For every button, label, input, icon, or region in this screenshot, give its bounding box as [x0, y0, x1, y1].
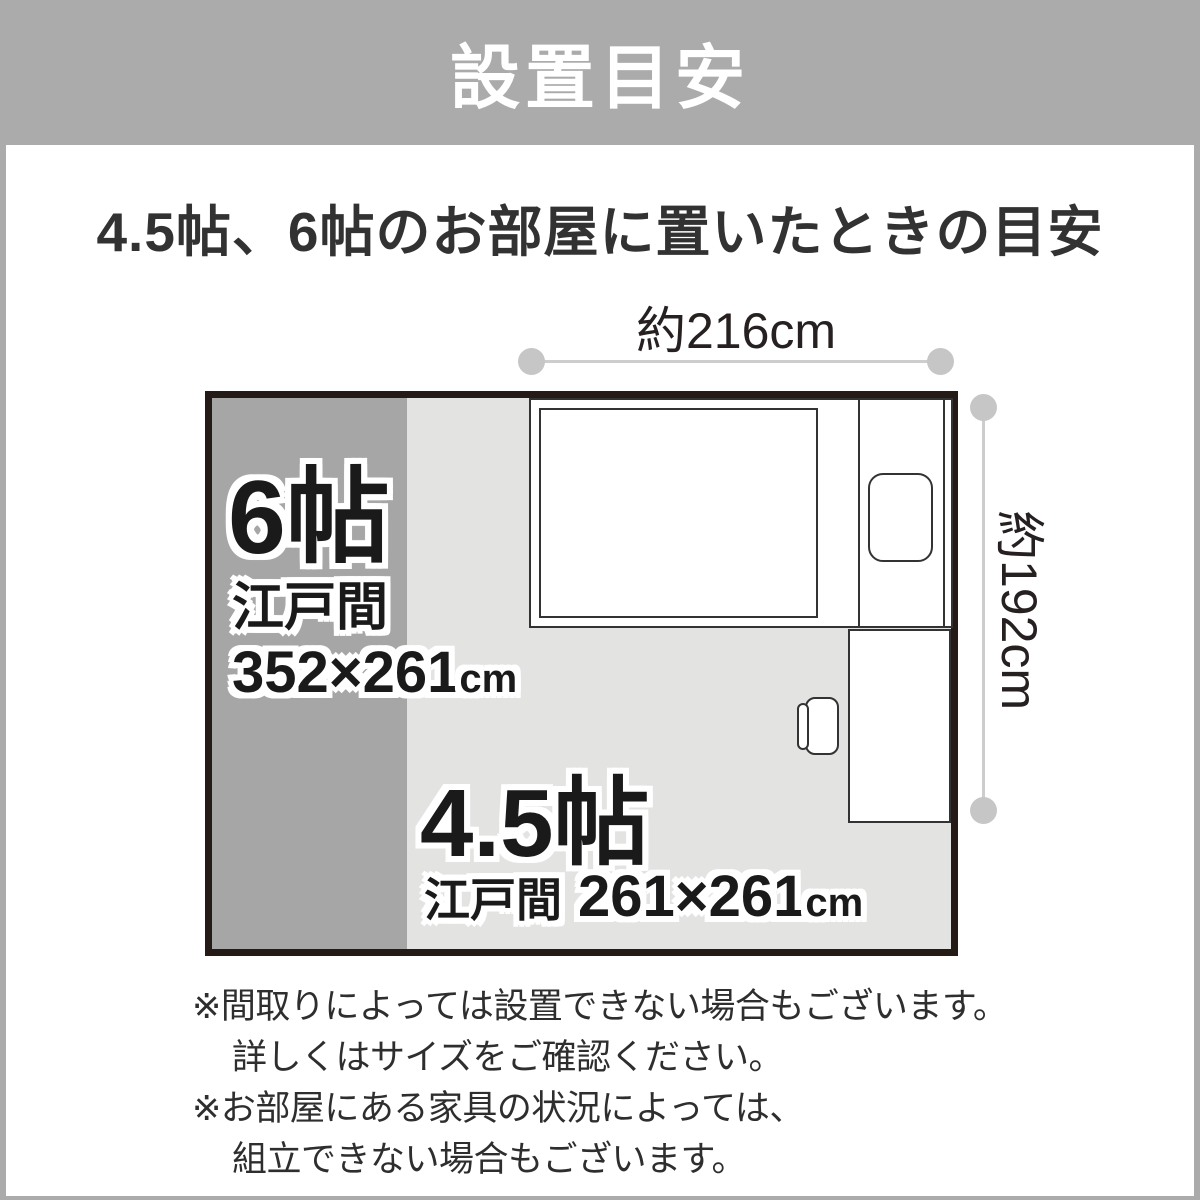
- desk-outline: [848, 629, 951, 823]
- chair-seat: [805, 697, 839, 755]
- content-card: 4.5帖、6帖のお部屋に置いたときの目安 約216cm 約192cm 6帖 江戸…: [6, 145, 1194, 1196]
- six-jo-dimensions-unit: cm: [459, 657, 517, 701]
- four-half-jo-dimensions-value: 261×261: [578, 864, 805, 929]
- chair-backrest: [797, 703, 809, 750]
- note-line: ※お部屋にある家具の状況によっては、: [192, 1083, 1007, 1134]
- bed-duvet: [539, 408, 818, 618]
- four-half-jo-details-label: 江戸間261×261cm: [424, 868, 863, 926]
- six-jo-dimensions-label: 352×261cm: [232, 644, 517, 702]
- dimension-endpoint-dot: [970, 797, 997, 824]
- four-half-jo-type-label: 江戸間: [424, 874, 562, 926]
- page-background: { "header": { "title": "設置目安" }, "conten…: [0, 0, 1200, 1200]
- room-outline: 6帖 江戸間 352×261cm 4.5帖 江戸間261×261cm: [205, 391, 958, 956]
- header-banner: 設置目安: [0, 0, 1200, 145]
- four-half-jo-size-label: 4.5帖: [420, 776, 649, 872]
- height-dimension-line: [982, 408, 985, 810]
- note-line: 組立できない場合もございます。: [192, 1134, 1007, 1185]
- dimension-endpoint-dot: [927, 348, 954, 375]
- four-half-jo-dimensions-unit: cm: [805, 881, 863, 925]
- width-dimension-label: 約216cm: [532, 291, 940, 363]
- dimension-endpoint-dot: [970, 394, 997, 421]
- six-jo-dimensions-value: 352×261: [232, 640, 459, 705]
- bed-pillow: [868, 473, 933, 562]
- six-jo-size-label: 6帖: [228, 466, 390, 570]
- six-jo-type-label: 江戸間: [232, 582, 388, 634]
- dimension-endpoint-dot: [518, 348, 545, 375]
- bed-fold-line: [858, 400, 860, 626]
- bed-outline: [529, 398, 953, 628]
- note-line: ※間取りによっては設置できない場合もございます。: [192, 981, 1007, 1032]
- notes-section: ※間取りによっては設置できない場合もございます。 詳しくはサイズをご確認ください…: [192, 981, 1007, 1185]
- bed-headboard-line: [943, 400, 945, 626]
- header-title: 設置目安: [450, 22, 750, 123]
- page-title: 4.5帖、6帖のお部屋に置いたときの目安: [6, 187, 1194, 267]
- note-line: 詳しくはサイズをご確認ください。: [192, 1032, 1007, 1083]
- height-dimension-label: 約192cm: [993, 490, 1045, 730]
- width-dimension-line: [532, 360, 940, 363]
